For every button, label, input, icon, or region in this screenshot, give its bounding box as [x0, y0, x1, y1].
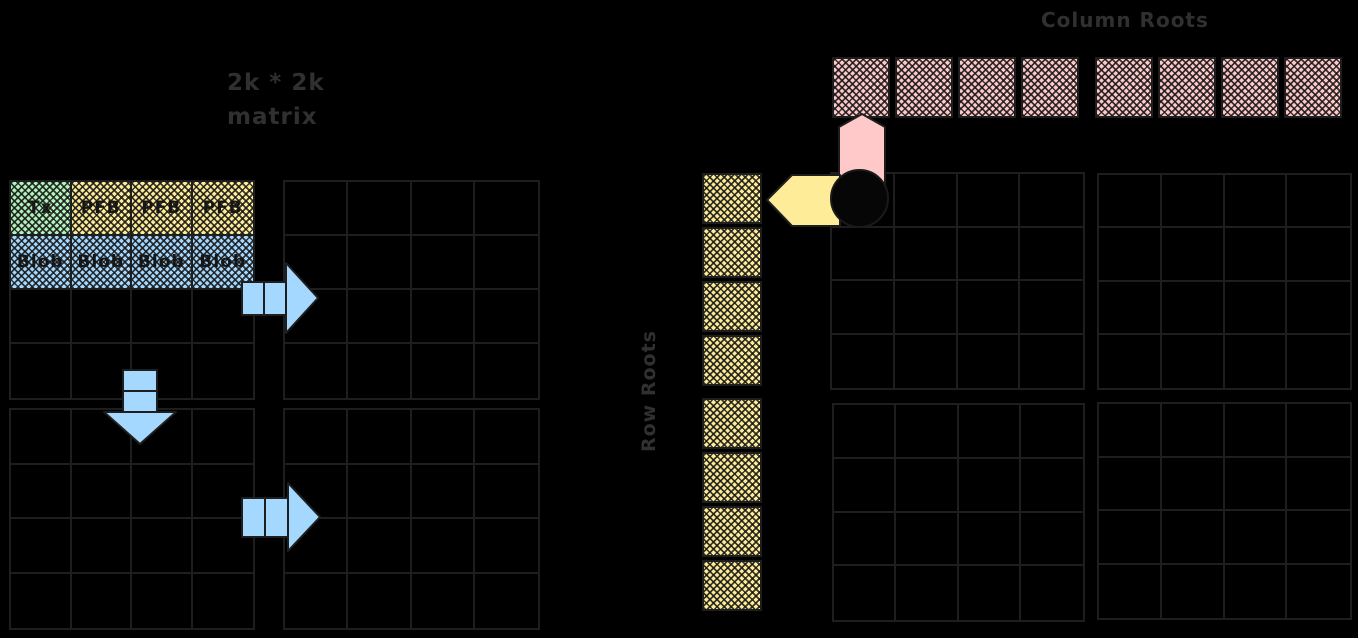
grid-cell [72, 519, 133, 574]
row-root-block [702, 173, 762, 224]
grid-cell [1099, 282, 1162, 335]
matrix-title: 2k * 2k matrix [227, 66, 325, 134]
row-roots-group-1 [702, 173, 762, 386]
matrix-cell-blob: Blob [132, 236, 193, 290]
matrix-quadrant-right-bottom-right [1097, 402, 1352, 620]
grid-cell [834, 459, 896, 513]
matrix-title-line1: 2k * 2k [227, 66, 325, 100]
grid-cell [958, 228, 1021, 282]
grid-cell [1162, 282, 1225, 335]
grid-cell [193, 410, 254, 465]
grid-cell [132, 574, 193, 629]
grid-cell [348, 182, 411, 236]
grid-cell [285, 574, 348, 629]
grid-cell [412, 519, 475, 574]
grid-cell [896, 405, 958, 459]
matrix-cell-label: Blob [77, 252, 124, 272]
row-root-block [702, 506, 762, 557]
column-root-block [1021, 57, 1079, 118]
grid-cell [1225, 335, 1288, 388]
column-root-block [958, 57, 1016, 118]
grid-cell [1020, 335, 1083, 389]
matrix-cell-label: PFB [141, 198, 181, 218]
right-arrow-icon [240, 261, 320, 335]
row-roots-group-2 [702, 398, 762, 611]
grid-cell [1099, 228, 1162, 281]
column-roots-label: Column Roots [1041, 8, 1209, 32]
column-roots-group-2 [1095, 57, 1342, 118]
grid-cell [1287, 565, 1350, 619]
grid-cell [475, 574, 538, 629]
grid-cell [412, 574, 475, 629]
grid-cell [132, 290, 193, 344]
grid-cell [834, 405, 896, 459]
matrix-cell-label: Blob [17, 252, 64, 272]
grid-cell [193, 574, 254, 629]
grid-cell [285, 410, 348, 465]
grid-cell [959, 459, 1021, 513]
row-root-block [702, 452, 762, 503]
grid-cell [72, 465, 133, 520]
grid-cell [1099, 458, 1162, 512]
matrix-cell-label: Tx [28, 198, 53, 218]
grid-cell [1099, 565, 1162, 619]
grid-cell [832, 335, 895, 389]
grid-cell [1287, 511, 1350, 565]
matrix-cell-label: PFB [81, 198, 121, 218]
grid-cell [412, 410, 475, 465]
grid-cell [834, 566, 896, 620]
grid-cell [72, 574, 133, 629]
grid-cell [834, 513, 896, 567]
grid-cell [1021, 513, 1083, 567]
grid-cell [895, 228, 958, 282]
grid-cell [959, 513, 1021, 567]
grid-cell [1099, 175, 1162, 228]
matrix-cell-blob: Blob [11, 236, 72, 290]
row-roots-label: Row Roots [638, 326, 660, 452]
matrix-cell-pfb: PFB [132, 182, 193, 236]
column-roots-group-1 [832, 57, 1079, 118]
grid-cell [285, 344, 348, 398]
matrix-cell-label: Blob [138, 252, 185, 272]
grid-cell [959, 405, 1021, 459]
matrix-quadrant-right-top-right [1097, 173, 1352, 390]
grid-cell [1099, 404, 1162, 458]
row-root-block [702, 560, 762, 611]
grid-cell [11, 519, 72, 574]
grid-cell [895, 281, 958, 335]
grid-cell [412, 182, 475, 236]
grid-cell [1225, 404, 1288, 458]
grid-cell [1287, 404, 1350, 458]
grid-cell [132, 519, 193, 574]
grid-cell [1099, 511, 1162, 565]
grid-cell [1162, 228, 1225, 281]
grid-cell [1162, 335, 1225, 388]
grid-cell [11, 410, 72, 465]
matrix-cell-blob: Blob [72, 236, 133, 290]
grid-cell [412, 465, 475, 520]
grid-cell [11, 344, 72, 398]
row-root-block [702, 335, 762, 386]
grid-cell [958, 281, 1021, 335]
grid-cell [348, 519, 411, 574]
matrix-cell-label: PFB [203, 198, 243, 218]
grid-cell [1099, 335, 1162, 388]
grid-cell [1162, 565, 1225, 619]
matrix-quadrant-left-top-right [283, 180, 540, 400]
grid-cell [348, 290, 411, 344]
grid-cell [1162, 458, 1225, 512]
grid-cell [895, 335, 958, 389]
grid-cell [1162, 404, 1225, 458]
column-root-block [1221, 57, 1279, 118]
grid-cell [958, 335, 1021, 389]
grid-cell [348, 465, 411, 520]
grid-cell [1021, 405, 1083, 459]
column-root-block [1158, 57, 1216, 118]
column-root-block [1284, 57, 1342, 118]
diagram-canvas: 2k * 2k matrix Column Roots Row Roots Tx… [0, 0, 1358, 638]
grid-cell [412, 290, 475, 344]
grid-cell [475, 290, 538, 344]
right-arrow-icon [240, 480, 322, 554]
column-root-block [832, 57, 890, 118]
grid-cell [1162, 175, 1225, 228]
grid-cell [475, 182, 538, 236]
filled-circle-icon [830, 169, 889, 228]
matrix-quadrant-right-bottom-left [832, 403, 1085, 622]
matrix-quadrant-left-top-left: TxPFBPFBPFBBlobBlobBlobBlob [9, 180, 255, 400]
grid-cell [896, 513, 958, 567]
grid-cell [475, 410, 538, 465]
grid-cell [475, 344, 538, 398]
grid-cell [132, 465, 193, 520]
matrix-cell-pfb: PFB [193, 182, 254, 236]
grid-cell [1287, 282, 1350, 335]
grid-cell [1225, 282, 1288, 335]
grid-cell [1287, 335, 1350, 388]
grid-cell [1020, 281, 1083, 335]
row-root-block [702, 281, 762, 332]
grid-cell [1020, 174, 1083, 228]
grid-cell [11, 465, 72, 520]
grid-cell [1225, 228, 1288, 281]
grid-cell [1162, 511, 1225, 565]
grid-cell [895, 174, 958, 228]
grid-cell [1225, 175, 1288, 228]
grid-cell [475, 465, 538, 520]
grid-cell [412, 236, 475, 290]
grid-cell [832, 228, 895, 282]
grid-cell [193, 344, 254, 398]
down-arrow-icon [100, 368, 180, 446]
row-root-block [702, 398, 762, 449]
grid-cell [412, 344, 475, 398]
grid-cell [959, 566, 1021, 620]
grid-cell [832, 281, 895, 335]
grid-cell [1225, 511, 1288, 565]
grid-cell [1020, 228, 1083, 282]
matrix-title-line2: matrix [227, 100, 325, 134]
column-root-block [1095, 57, 1153, 118]
grid-cell [958, 174, 1021, 228]
matrix-cell-tx: Tx [11, 182, 72, 236]
grid-cell [11, 290, 72, 344]
grid-cell [1287, 175, 1350, 228]
grid-cell [1021, 459, 1083, 513]
grid-cell [348, 236, 411, 290]
column-root-block [895, 57, 953, 118]
grid-cell [11, 574, 72, 629]
row-root-block [702, 227, 762, 278]
grid-cell [1225, 565, 1288, 619]
grid-cell [475, 236, 538, 290]
grid-cell [1287, 228, 1350, 281]
grid-cell [475, 519, 538, 574]
grid-cell [896, 566, 958, 620]
grid-cell [285, 182, 348, 236]
grid-cell [348, 574, 411, 629]
grid-cell [1287, 458, 1350, 512]
grid-cell [1021, 566, 1083, 620]
grid-cell [1225, 458, 1288, 512]
grid-cell [896, 459, 958, 513]
grid-cell [72, 290, 133, 344]
grid-cell [348, 344, 411, 398]
grid-cell [348, 410, 411, 465]
matrix-cell-pfb: PFB [72, 182, 133, 236]
